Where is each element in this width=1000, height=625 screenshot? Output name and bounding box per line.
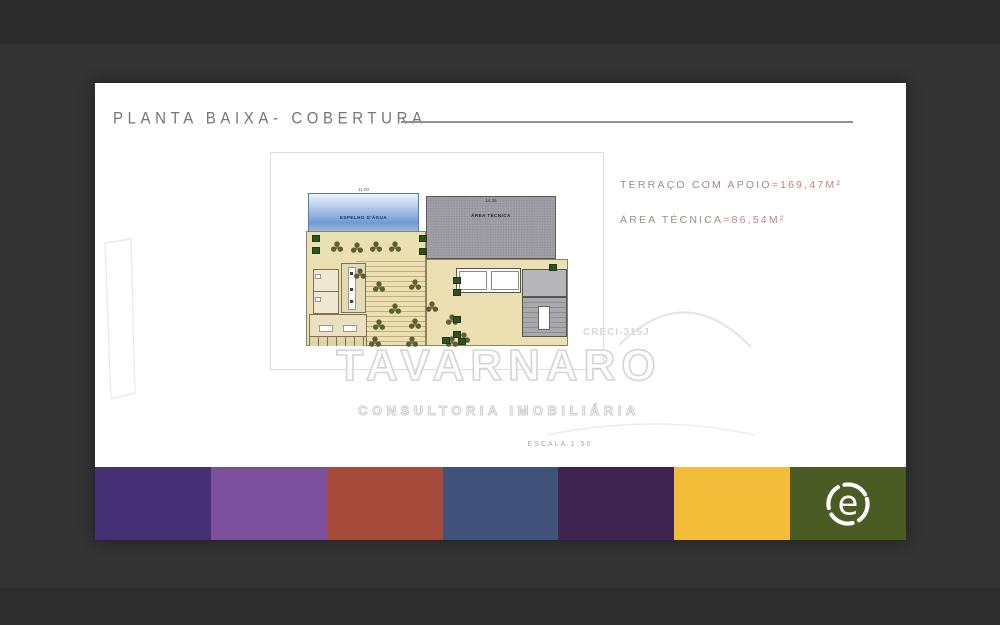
e-circle-logo: e [820, 476, 876, 532]
water-mirror-label: ESPELHO D'ÁGUA [309, 215, 418, 220]
brand-watermark: TAVARNARO [323, 341, 675, 391]
kitchen-counter [343, 325, 357, 332]
planter-marker [312, 235, 320, 242]
bar-equipment [350, 288, 353, 291]
color-swatch: e [790, 467, 906, 540]
restroom-divider-wall [314, 291, 338, 292]
screenshot-root: { "page": { "title": "PLANTA BAIXA- COBE… [0, 0, 1000, 625]
brand-color-strip: e [95, 467, 906, 540]
color-swatch [95, 467, 211, 540]
technical-area-label-text: ÁREA TÉCNICA [620, 214, 723, 226]
table-marker [409, 279, 421, 290]
color-swatch [443, 467, 559, 540]
e-logo-letter: e [838, 483, 859, 522]
planter-marker [453, 316, 461, 323]
table-marker [389, 241, 401, 252]
floor-plan: 11.00 ESPELHO D'ÁGUA 14.35 ÁREA TÉCNICA [270, 152, 604, 370]
color-swatch [211, 467, 327, 540]
table-marker [426, 301, 438, 312]
table-marker [370, 241, 382, 252]
slide-page: PLANTA BAIXA- COBERTURA 11.00 ESPELHO D'… [95, 83, 906, 540]
table-marker [331, 241, 343, 252]
technical-dimension-label: 14.35 [427, 198, 555, 203]
technical-area-value: =86,54M² [723, 214, 785, 226]
elevator-core [456, 268, 521, 293]
elevator-cab [459, 271, 487, 290]
water-mirror-area: 11.00 ESPELHO D'ÁGUA [308, 193, 419, 232]
kitchen-counter [319, 325, 333, 332]
scale-note: ESCALA 1:50 [495, 441, 625, 448]
water-dimension-label: 11.00 [309, 187, 418, 192]
planter-marker [419, 248, 427, 255]
elevator-cab [491, 271, 519, 290]
planter-marker [453, 289, 461, 296]
planter-marker [453, 331, 461, 338]
backdrop-top-band [0, 0, 1000, 44]
technical-area-annotation: ÁREA TÉCNICA=86,54M² [620, 214, 890, 226]
brand-tagline: CONSULTORIA IMOBILIÁRIA [323, 403, 675, 418]
table-marker [354, 268, 366, 279]
table-marker [409, 318, 421, 329]
table-marker [351, 242, 363, 253]
creci-registration: CRECI-315J [583, 327, 703, 338]
terrace-area-value: =169,47M² [772, 179, 842, 191]
area-annotations: TERRAÇO COM APOIO=169,47M² ÁREA TÉCNICA=… [620, 179, 890, 249]
backdrop-bottom-band [0, 588, 1000, 625]
machine-room [522, 269, 567, 297]
planter-marker [453, 277, 461, 284]
toilet-fixture [315, 274, 321, 279]
page-title: PLANTA BAIXA- COBERTURA [113, 109, 427, 128]
table-marker [389, 303, 401, 314]
color-swatch [674, 467, 790, 540]
planter-marker [419, 235, 427, 242]
terrace-area-label: TERRAÇO COM APOIO [620, 179, 772, 191]
restrooms-block [313, 269, 339, 314]
terrace-area-annotation: TERRAÇO COM APOIO=169,47M² [620, 179, 890, 191]
table-marker [373, 319, 385, 330]
stair-well-opening [538, 306, 550, 330]
color-swatch [327, 467, 443, 540]
technical-area-label: ÁREA TÉCNICA [427, 213, 555, 218]
bar-equipment [350, 272, 353, 275]
planter-marker [312, 247, 320, 254]
technical-area: 14.35 ÁREA TÉCNICA [426, 196, 556, 259]
toilet-fixture [315, 297, 321, 302]
title-rule [401, 121, 853, 123]
table-marker [373, 281, 385, 292]
color-swatch [558, 467, 674, 540]
planter-marker [549, 264, 557, 271]
stairwell [522, 297, 567, 337]
bar-equipment [350, 300, 353, 303]
